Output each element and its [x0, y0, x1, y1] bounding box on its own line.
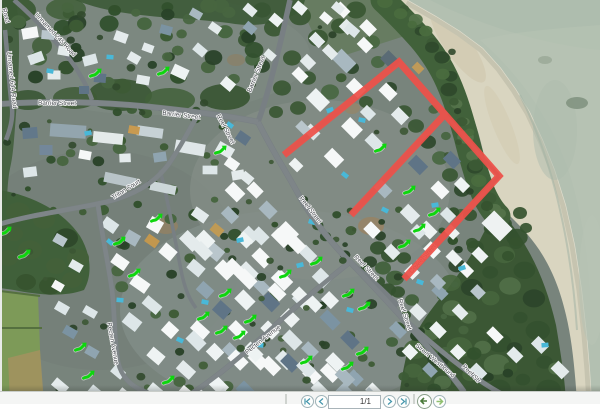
svg-text:Barrier Street: Barrier Street [38, 100, 76, 108]
